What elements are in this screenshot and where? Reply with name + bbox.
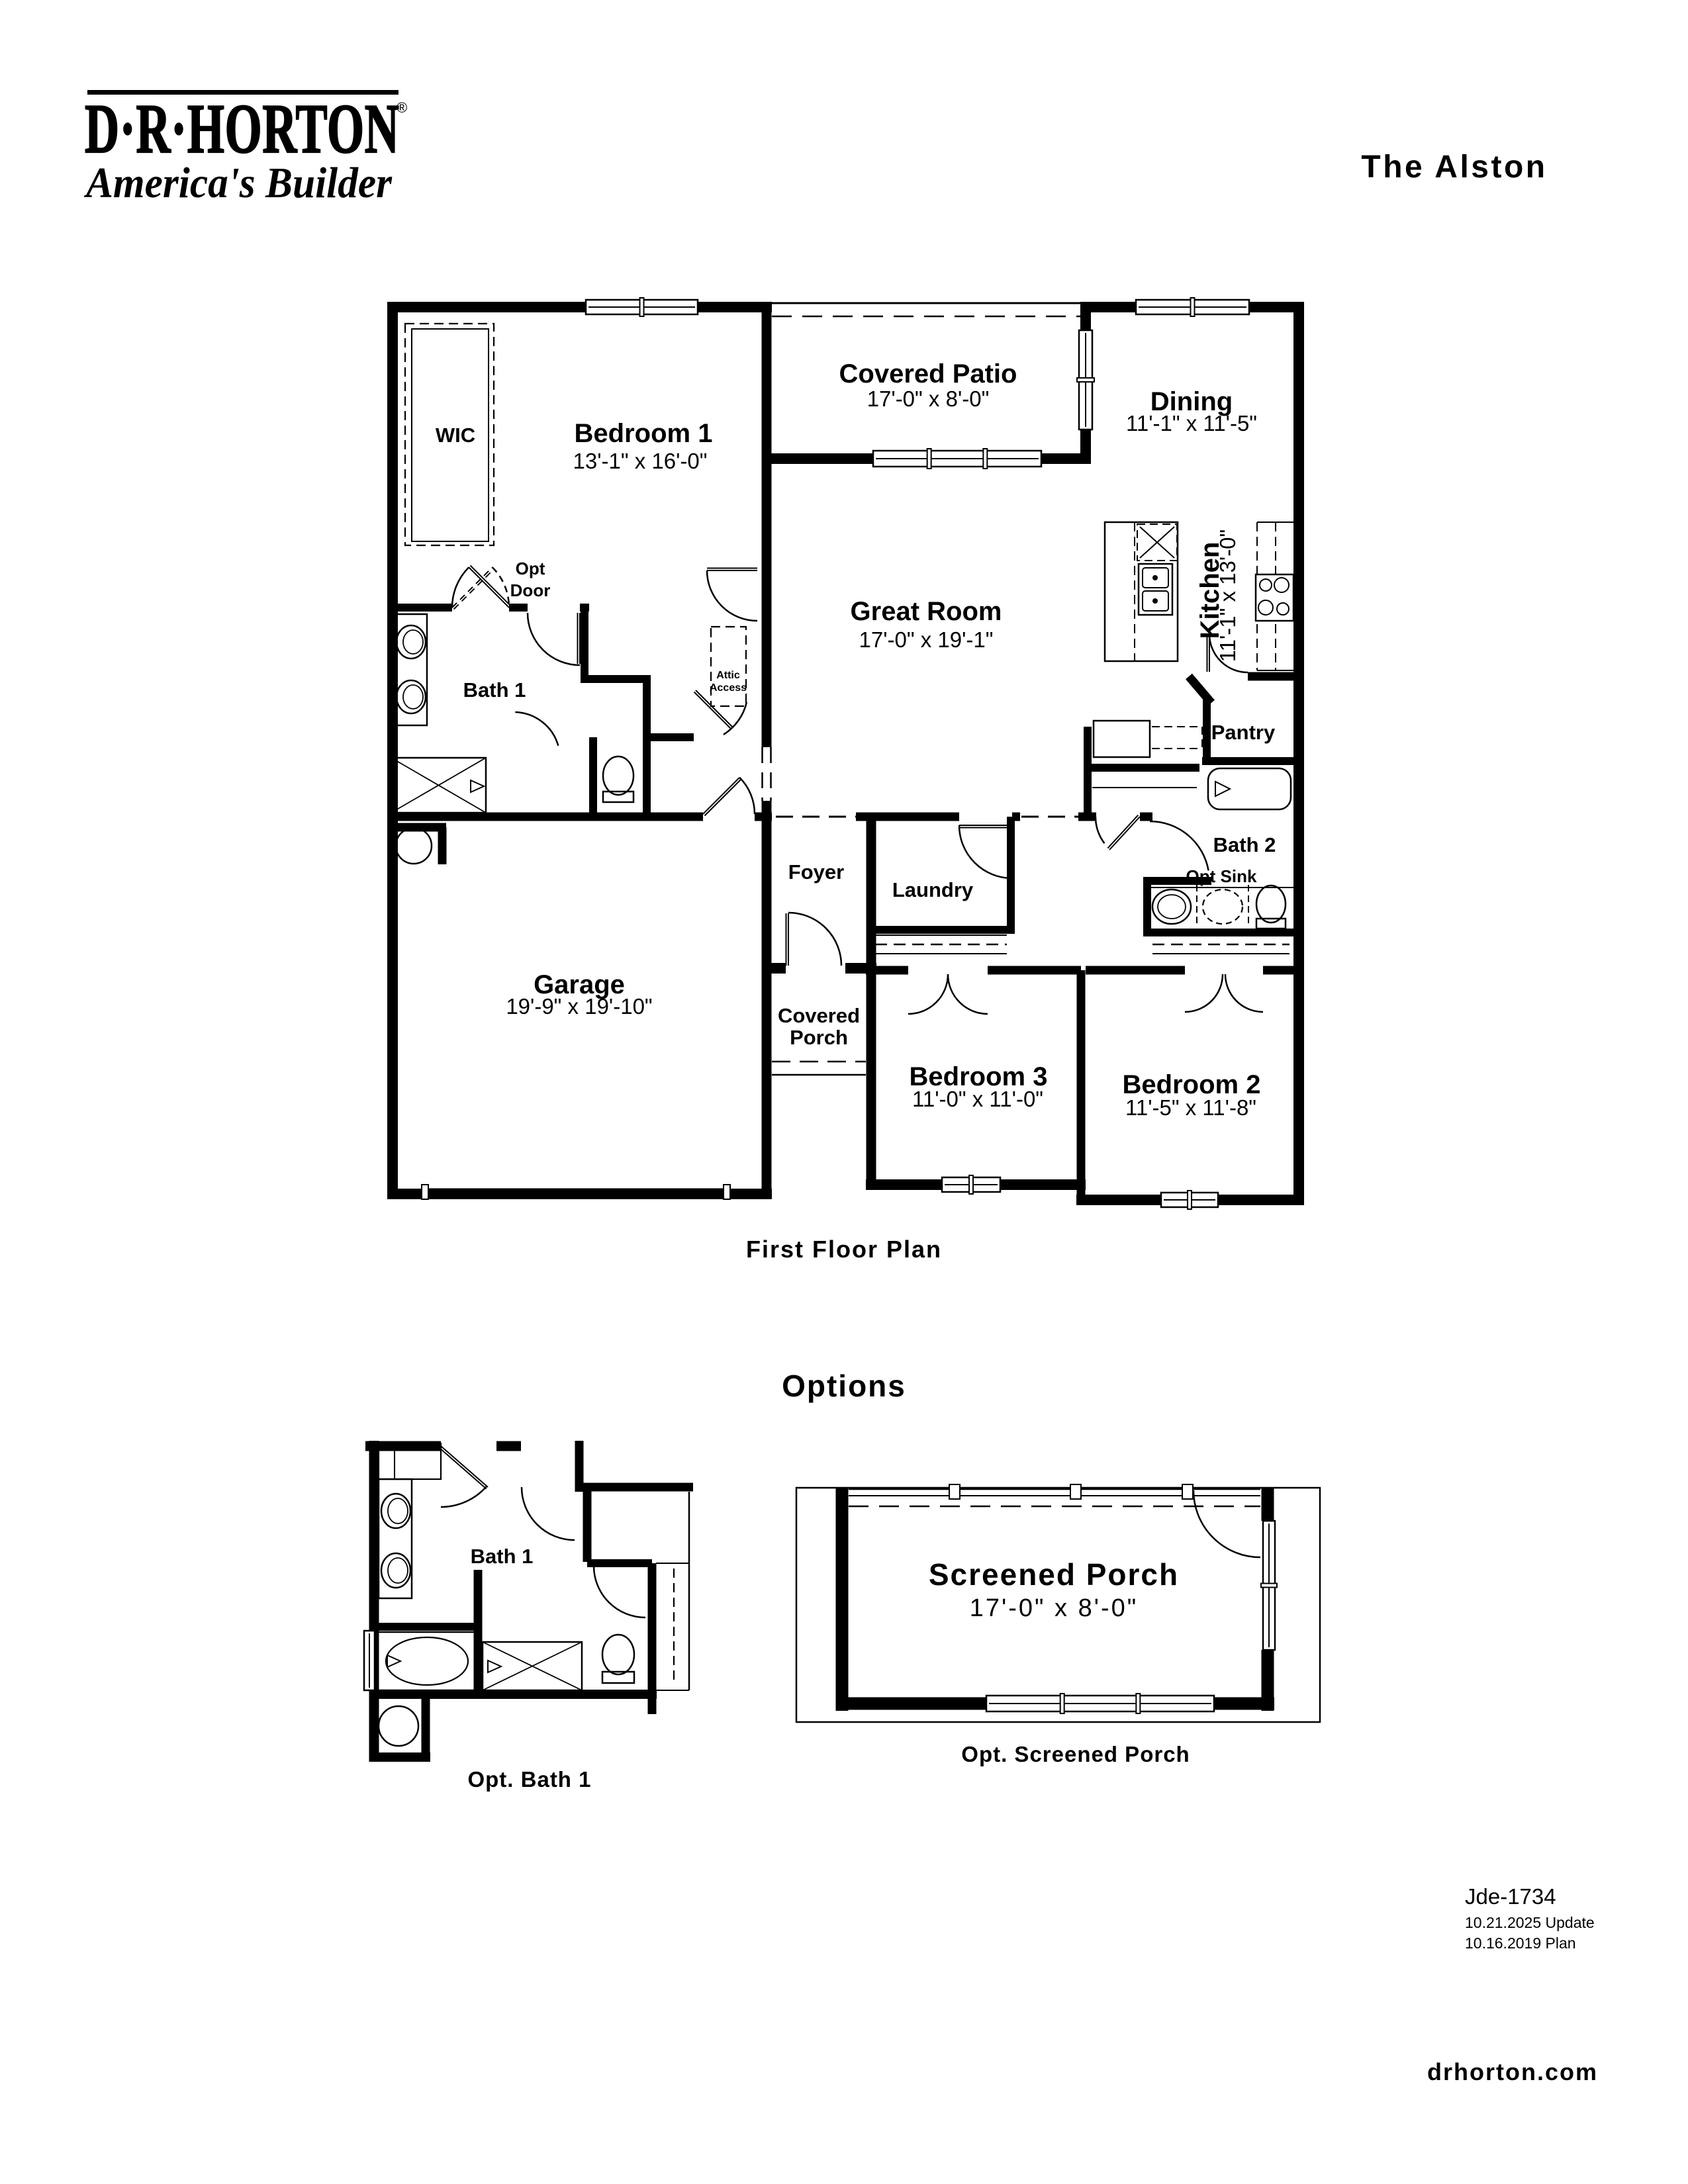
svg-text:Bedroom 1: Bedroom 1 bbox=[575, 419, 713, 448]
svg-text:10.16.2019 Plan: 10.16.2019 Plan bbox=[1465, 1934, 1576, 1952]
svg-text:Porch: Porch bbox=[790, 1026, 848, 1049]
svg-text:Bath 2: Bath 2 bbox=[1213, 833, 1276, 856]
svg-text:Attic: Attic bbox=[716, 670, 740, 681]
svg-text:Jde-1734: Jde-1734 bbox=[1465, 1884, 1556, 1909]
svg-text:First Floor Plan: First Floor Plan bbox=[746, 1236, 942, 1263]
svg-text:11'-5" x 11'-8": 11'-5" x 11'-8" bbox=[1125, 1095, 1256, 1120]
svg-text:11'-1" x 13'-0": 11'-1" x 13'-0" bbox=[1215, 529, 1240, 662]
svg-text:Opt. Screened Porch: Opt. Screened Porch bbox=[961, 1742, 1190, 1766]
svg-text:Access: Access bbox=[710, 682, 747, 694]
svg-text:Options: Options bbox=[782, 1369, 906, 1403]
svg-text:D·R·HORTON: D·R·HORTON bbox=[85, 89, 399, 167]
svg-text:Opt Sink: Opt Sink bbox=[1186, 866, 1257, 886]
svg-text:17'-0" x 8'-0": 17'-0" x 8'-0" bbox=[867, 387, 990, 411]
svg-text:Laundry: Laundry bbox=[892, 878, 974, 901]
svg-text:11'-0" x 11'-0": 11'-0" x 11'-0" bbox=[912, 1087, 1043, 1111]
svg-text:Opt: Opt bbox=[516, 559, 545, 578]
svg-text:Door: Door bbox=[510, 580, 551, 600]
svg-text:10.21.2025 Update: 10.21.2025 Update bbox=[1465, 1914, 1595, 1931]
svg-text:17'-0" x 19'-1": 17'-0" x 19'-1" bbox=[859, 627, 994, 652]
svg-text:Bath 1: Bath 1 bbox=[471, 1545, 534, 1568]
svg-text:13'-1" x 16'-0": 13'-1" x 16'-0" bbox=[573, 449, 708, 473]
svg-text:Screened Porch: Screened Porch bbox=[929, 1557, 1179, 1592]
svg-text:Opt. Bath 1: Opt. Bath 1 bbox=[467, 1767, 591, 1792]
svg-text:Covered: Covered bbox=[778, 1004, 860, 1027]
svg-text:Bath 1: Bath 1 bbox=[463, 678, 526, 702]
svg-text:WIC: WIC bbox=[436, 424, 475, 447]
svg-text:drhorton.com: drhorton.com bbox=[1427, 2058, 1598, 2085]
svg-text:19'-9" x 19'-10": 19'-9" x 19'-10" bbox=[506, 994, 652, 1019]
svg-text:Covered Patio: Covered Patio bbox=[839, 359, 1017, 388]
svg-text:11'-1" x 11'-5": 11'-1" x 11'-5" bbox=[1126, 411, 1257, 435]
svg-text:®: ® bbox=[397, 99, 407, 116]
svg-text:Great Room: Great Room bbox=[851, 597, 1002, 626]
svg-text:Pantry: Pantry bbox=[1211, 721, 1276, 744]
svg-text:America's Builder: America's Builder bbox=[83, 158, 393, 207]
svg-text:The Alston: The Alston bbox=[1361, 150, 1547, 185]
svg-text:17'-0" x 8'-0": 17'-0" x 8'-0" bbox=[970, 1594, 1139, 1622]
svg-text:Foyer: Foyer bbox=[788, 860, 844, 884]
